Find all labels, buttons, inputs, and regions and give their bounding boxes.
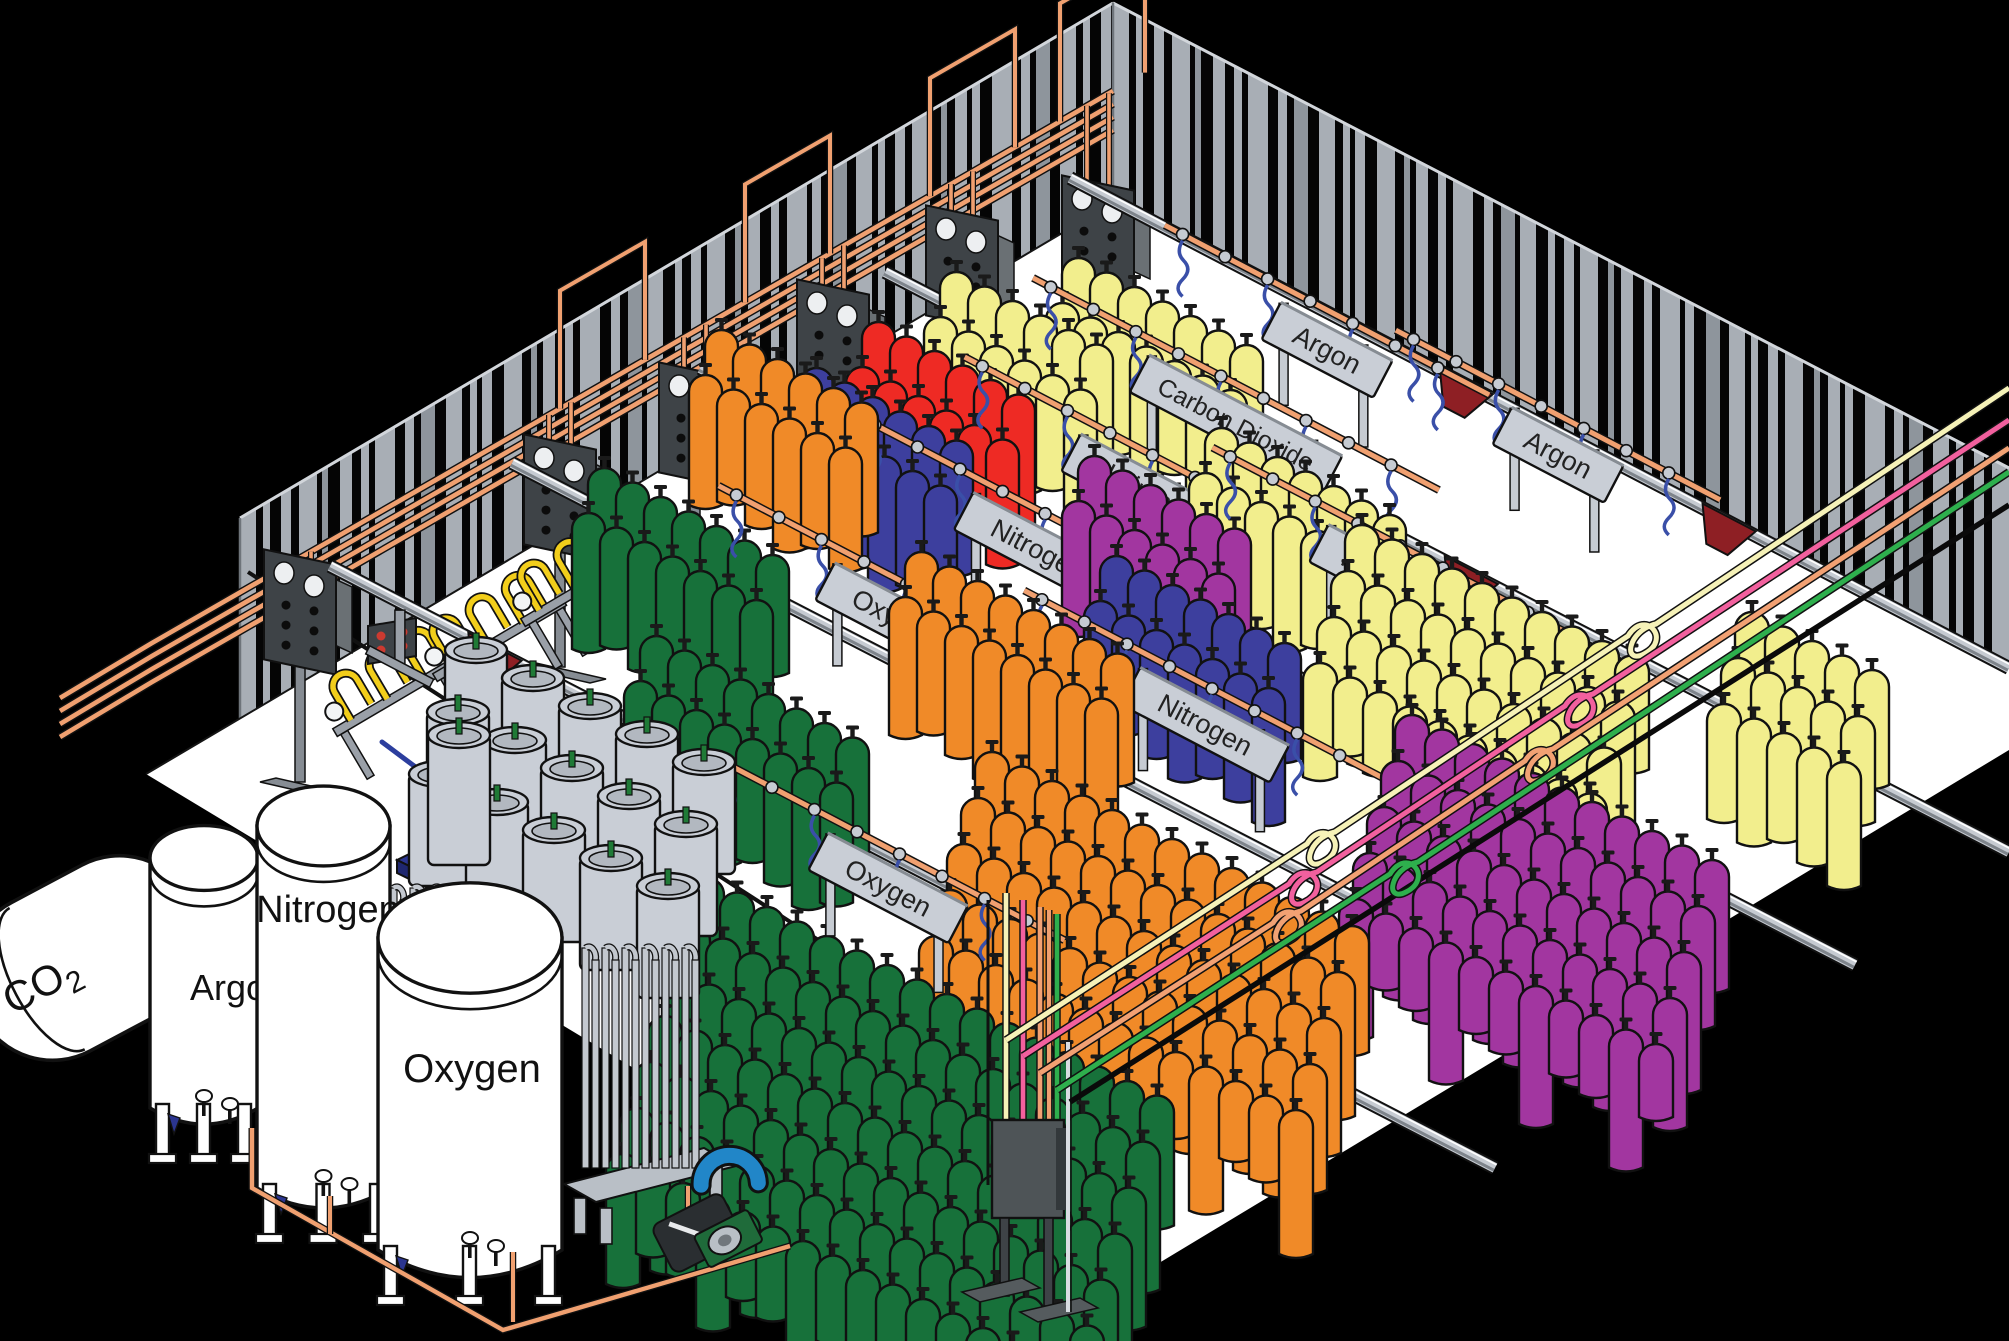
cylinder-valve (795, 1123, 808, 1127)
fill-point-regulator (1078, 616, 1090, 628)
cylinder-valve (1196, 842, 1209, 846)
cylinder-valve (1374, 680, 1387, 684)
cylinder-valve-stem (870, 388, 874, 398)
cylinder-valve-stem (1200, 845, 1204, 855)
cylinder-valve-stem (1128, 968, 1132, 978)
fill-point-regulator (1408, 333, 1420, 345)
cylinder-valve (1011, 643, 1024, 647)
cylinder-valve (906, 459, 919, 463)
cylinder-valve-stem (891, 1276, 895, 1286)
cylinder-valve-stem (1099, 690, 1103, 700)
cylinder-valve (783, 407, 796, 411)
vaporizer-tube (672, 960, 679, 1168)
cylinder-valve (1199, 461, 1212, 465)
cylinder-valve (1838, 750, 1851, 754)
cylinder-valve-stem (1450, 560, 1454, 570)
cylinder-valve (1648, 926, 1661, 930)
cylinder-valve (750, 588, 763, 592)
cylinder-valve (1410, 916, 1423, 920)
cylinder-valve-stem (1172, 937, 1176, 947)
cylinder-valve-stem (843, 1094, 847, 1104)
cylinder-valve (931, 1241, 944, 1245)
cylinder-valve-stem (1376, 577, 1380, 587)
cylinder-valve (705, 1079, 718, 1083)
cylinder-valve (1383, 503, 1396, 507)
cylinder-valve-stem (769, 1111, 773, 1121)
cylinder-valve-stem (1332, 608, 1336, 618)
cylinder-valve-stem (642, 533, 646, 543)
fill-point-regulator (1164, 660, 1176, 672)
cylinder-valve (990, 953, 1003, 957)
fill-point-regulator (1224, 451, 1236, 463)
cylinder-valve (1438, 824, 1451, 828)
fill-point-regulator (1172, 348, 1184, 360)
cylinder-valve-stem (1390, 531, 1394, 541)
cylinder-valve (774, 742, 787, 746)
cylinder-valve-stem (1392, 637, 1396, 647)
cylinder-valve-stem (1226, 605, 1230, 615)
vaporizer-tube (582, 948, 589, 1168)
cylinder-valve-stem (813, 1080, 817, 1090)
cylinder-valve (1076, 784, 1089, 788)
tank-leg (542, 1246, 555, 1298)
cylinder-valve-stem (770, 546, 774, 556)
cylinder-valve-stem (1387, 506, 1391, 516)
cylinder-valve-stem (1142, 922, 1146, 932)
cylinder-valve-stem (1870, 661, 1874, 671)
cylinder-valve-stem (1318, 654, 1322, 664)
cylinder-valve-stem (905, 1230, 909, 1240)
valve-handwheel (342, 1178, 358, 1190)
cylinder-valve-stem (834, 774, 838, 784)
cylinder-valve (1200, 1055, 1213, 1059)
cylinder-valve-stem (1254, 620, 1258, 630)
cylinder-valve (855, 391, 868, 395)
dewar-valve (608, 841, 614, 857)
cylinder-valve (913, 1074, 926, 1078)
tank-leg (156, 1104, 169, 1156)
cylinder-valve (1560, 989, 1573, 993)
cylinder-valve (1492, 632, 1505, 636)
cylinder-valve (1454, 885, 1467, 889)
cylinder-valve-stem (1098, 954, 1102, 964)
cylinder-valve (1748, 707, 1761, 711)
cylinder-valve-stem (1322, 1009, 1326, 1019)
cylinder-valve (841, 1198, 854, 1202)
cylinder-valve-stem (938, 477, 942, 487)
cylinder-valve-stem (975, 1000, 979, 1010)
cylinder-valve-stem (666, 687, 670, 697)
cylinder-valve-stem (933, 1138, 937, 1148)
cylinder-valve-stem (1336, 963, 1340, 973)
fill-point-regulator (1262, 273, 1274, 285)
fill-point-regulator (1291, 727, 1303, 739)
cylinder-valve-stem (1412, 813, 1416, 823)
cylinder-valve-stem (1204, 1058, 1208, 1068)
vaporizer-tube (632, 960, 639, 1168)
cylinder-valve (928, 339, 941, 343)
cylinder-valve (1122, 604, 1135, 608)
cylinder-valve-stem (1562, 885, 1566, 895)
cylinder-valve-stem (799, 1126, 803, 1136)
panel-port (677, 414, 686, 423)
cylinder-valve-stem (1096, 847, 1100, 857)
cylinder-valve-stem (1346, 562, 1350, 572)
cylinder-valve-stem (1534, 977, 1538, 987)
cylinder-valve (771, 347, 784, 351)
cylinder-valve (1090, 333, 1103, 337)
cylinder-valve-stem (1204, 505, 1208, 515)
cylinder-valve-stem (1154, 621, 1158, 631)
cylinder-valve-stem (794, 700, 798, 710)
dewar-valve (455, 695, 461, 711)
cylinder-valve-stem (977, 1106, 981, 1116)
cylinder-valve-stem (1348, 669, 1352, 679)
cylinder-valve (1095, 1268, 1108, 1272)
cylinder-valve (1448, 663, 1461, 667)
cylinder-valve-stem (1052, 879, 1056, 889)
cylinder-valve (986, 740, 999, 744)
fill-point-regulator (808, 804, 820, 816)
cylinder-valve-stem (1766, 664, 1770, 674)
cylinder-valve-stem (976, 789, 980, 799)
cylinder-valve-stem (1414, 919, 1418, 929)
fill-point-regulator (1334, 749, 1346, 761)
cylinder-valve (1079, 1207, 1092, 1211)
cylinder-valve-stem (871, 1002, 875, 1012)
cylinder-valve (1080, 997, 1093, 1001)
cylinder-valve-stem (1666, 883, 1670, 893)
cylinder-valve (1632, 865, 1645, 869)
cylinder-valve (999, 584, 1012, 588)
vaporizer-tube (622, 948, 629, 1168)
cylinder-valve (719, 1033, 732, 1037)
cylinder-valve-stem (981, 1319, 985, 1329)
cylinder-valve-stem (1238, 665, 1242, 675)
cylinder-valve-stem (1282, 634, 1286, 644)
cylinder-valve-stem (1652, 929, 1656, 939)
cylinder-valve (1244, 1023, 1257, 1027)
cylinder-valve (934, 305, 947, 309)
fill-point-regulator (851, 826, 863, 838)
cylinder-valve-stem (1015, 646, 1019, 656)
cylinder-valve (1271, 445, 1284, 449)
cylinder-valve (927, 600, 940, 604)
cylinder-valve-stem (703, 366, 707, 376)
cylinder-valve (1650, 1032, 1663, 1036)
tank-dome (150, 826, 258, 891)
cylinder-valve-stem (1140, 816, 1144, 826)
cylinder-valve (839, 436, 852, 440)
cylinder-valve (1299, 460, 1312, 464)
cylinder-valve-stem (738, 671, 742, 681)
cylinder-valve-stem (814, 359, 818, 369)
cylinder-valve (1476, 571, 1489, 575)
cylinder-valve (1151, 1084, 1164, 1088)
cylinder-valve-stem (1097, 1164, 1101, 1174)
fill-point-regulator (1343, 437, 1355, 449)
fill-point-regulator (1130, 326, 1142, 338)
fill-point-regulator (1019, 382, 1031, 394)
cylinder-valve-stem (850, 729, 854, 739)
cylinder-valve-stem (1420, 545, 1424, 555)
cylinder-valve-stem (1359, 492, 1363, 502)
cylinder-valve-stem (1155, 1087, 1159, 1097)
tank-foot (256, 1234, 283, 1243)
cylinder-valve (1792, 675, 1805, 679)
cylinder-valve-stem (1440, 721, 1444, 731)
cylinder-valve (960, 939, 973, 943)
cylinder-valve (1144, 473, 1157, 477)
cylinder-valve-stem (1842, 753, 1846, 763)
cylinder-valve (1278, 631, 1291, 635)
cylinder-valve-stem (1076, 492, 1080, 502)
cylinder-valve (911, 968, 924, 972)
fill-point-regulator (894, 848, 906, 860)
fill-point-regulator (1215, 370, 1227, 382)
cylinder-valve-stem (1050, 366, 1054, 376)
cylinder-valve-stem (1083, 1210, 1087, 1220)
cylinder-valve (1646, 819, 1659, 823)
cylinder-valve (1094, 951, 1107, 955)
cylinder-valve-stem (785, 1172, 789, 1182)
cylinder-valve-stem (1578, 946, 1582, 956)
dewar-valve (701, 745, 707, 761)
cylinder-valve-stem (1620, 808, 1624, 818)
fill-point-regulator (976, 360, 988, 372)
panel-port (677, 434, 686, 443)
cylinder-valve-stem (731, 381, 735, 391)
cylinder-valve-stem (1203, 464, 1207, 474)
cylinder-valve (810, 356, 823, 360)
cylinder-valve (1194, 588, 1207, 592)
dewar-valve (644, 717, 650, 733)
fill-point-regulator (1535, 400, 1547, 412)
cylinder-valve-stem (1532, 871, 1536, 881)
cylinder-valve-stem (1287, 508, 1291, 518)
cylinder-valve-stem (1230, 859, 1234, 869)
cylinder-valve-stem (921, 1290, 925, 1300)
cylinder-valve (1234, 662, 1247, 666)
cylinder-valve (1230, 1069, 1243, 1073)
cylinder-valve-stem (1384, 905, 1388, 915)
cylinder-valve-stem (1540, 603, 1544, 613)
cylinder-valve-stem (876, 313, 880, 323)
cylinder-valve (869, 1106, 882, 1110)
cylinder-valve (734, 668, 747, 672)
cylinder-valve (1822, 690, 1835, 694)
cylinder-valve-stem (658, 488, 662, 498)
cylinder-valve (1128, 518, 1141, 522)
cylinder-valve (1328, 605, 1341, 609)
valve-handwheel (316, 1170, 332, 1182)
cylinder-valve-stem (737, 990, 741, 1000)
vaporizer-tube (652, 960, 659, 1168)
panel-port (282, 601, 291, 610)
cylinder-valve-stem (1608, 960, 1612, 970)
cylinder-valve-stem (783, 1065, 787, 1075)
cylinder-valve (699, 363, 712, 367)
cylinder-valve-stem (1182, 636, 1186, 646)
fill-point-regulator (1087, 303, 1099, 315)
cylinder-valve-stem (992, 850, 996, 860)
cylinder-valve-stem (1141, 1133, 1145, 1143)
cylinder-valve-stem (1696, 897, 1700, 907)
cylinder-valve (857, 1258, 870, 1262)
cylinder-valve-stem (1218, 1012, 1222, 1022)
cylinder-valve-stem (739, 1097, 743, 1107)
fill-point-regulator (911, 441, 923, 453)
cylinder-valve-stem (1039, 1242, 1043, 1252)
cylinder-valve-stem (1246, 920, 1250, 930)
cylinder-valve (1250, 617, 1263, 621)
cylinder-valve-stem (1452, 666, 1456, 676)
cylinder-valve (1478, 678, 1491, 682)
dewar-valve (665, 869, 671, 885)
cylinder-valve-stem (1294, 1101, 1298, 1111)
cylinder-valve (943, 555, 956, 559)
cylinder-valve-stem (841, 988, 845, 998)
cylinder-valve (943, 1089, 956, 1093)
cylinder-valve-stem (931, 1031, 935, 1041)
tank-foot (377, 1296, 404, 1305)
fill-point-regulator (858, 556, 870, 568)
cylinder-valve-stem (795, 913, 799, 923)
cylinder-valve (1243, 431, 1256, 435)
cylinder-valve-stem (1078, 381, 1082, 391)
cylinder-valve (883, 1060, 896, 1064)
pressure-gauge (534, 447, 554, 469)
pressure-gauge (564, 460, 584, 482)
fill-point-regulator (766, 781, 778, 793)
cylinder-valve-stem (682, 642, 686, 652)
cylinder-valve-stem (775, 350, 779, 360)
cylinder-valve (1081, 1314, 1094, 1318)
cylinder-valve (975, 1210, 988, 1214)
cylinder-valve-stem (1202, 951, 1206, 961)
dewar-valve (626, 779, 632, 795)
cylinder-valve (1088, 444, 1101, 448)
cylinder-valve (1332, 960, 1345, 964)
cylinder-valve-stem (1502, 856, 1506, 866)
fill-point-regulator (1663, 467, 1675, 479)
cylinder-valve-stem (1458, 888, 1462, 898)
cylinder-valve-stem (1488, 902, 1492, 912)
cylinder-valve-stem (859, 1155, 863, 1165)
cylinder-valve (715, 318, 728, 322)
cylinder-valve-stem (1084, 1000, 1088, 1010)
cylinder-valve (1093, 1161, 1106, 1165)
cylinder-valve (1262, 676, 1275, 680)
cylinder-valve-stem (965, 1259, 969, 1269)
cylinder-valve (1618, 911, 1631, 915)
cylinder-valve (1109, 1222, 1122, 1226)
cylinder-valve (1500, 960, 1513, 964)
pressure-gauge (936, 218, 956, 240)
cylinder-valve-stem (638, 672, 642, 682)
cylinder-valve (983, 629, 996, 633)
cylinder-valve-stem (1264, 1087, 1268, 1097)
cylinder-valve-stem (1127, 1179, 1131, 1189)
cylinder-valve-stem (831, 379, 835, 389)
cylinder-valve-stem (1496, 635, 1500, 645)
cylinder-valve-stem (1082, 893, 1086, 903)
cylinder-valve-stem (1474, 948, 1478, 958)
cylinder-valve-stem (926, 417, 930, 427)
panel-port (972, 262, 981, 271)
fill-point-regulator (815, 534, 827, 546)
cylinder-valve (1318, 1006, 1331, 1010)
cylinder-valve (1506, 586, 1519, 590)
cylinder-valve (1542, 822, 1555, 826)
cylinder-valve-stem (959, 617, 963, 627)
cylinder-valve (718, 713, 731, 717)
cylinder-valve-stem (747, 336, 751, 346)
cylinder-valve-stem (917, 1077, 921, 1087)
cylinder-valve-stem (811, 973, 815, 983)
cylinder-valve-stem (750, 730, 754, 740)
cylinder-valve (807, 970, 820, 974)
fill-point-regulator (1385, 459, 1397, 471)
cylinder-valve-stem (972, 416, 976, 426)
cylinder-valve-stem (1275, 448, 1279, 458)
cylinder-valve (1620, 1018, 1633, 1022)
vaporizer-tube (662, 948, 669, 1168)
cylinder-valve-stem (898, 403, 902, 413)
cylinder-valve (735, 1094, 748, 1098)
cylinder-valve-stem (1006, 804, 1010, 814)
vaporizer-tube (612, 960, 619, 1168)
cylinder-valve (1156, 290, 1169, 294)
cylinder-valve-stem (991, 1060, 995, 1070)
cylinder-valve (971, 569, 984, 573)
cylinder-valve-stem (949, 1198, 953, 1208)
cylinder-valve-stem (1198, 591, 1202, 601)
cylinder-valve (1240, 333, 1253, 337)
cylinder-valve (929, 1135, 942, 1139)
cylinder-valve-stem (1320, 903, 1324, 913)
cylinder-valve (749, 1048, 762, 1052)
cylinder-valve-stem (1248, 1026, 1252, 1036)
cylinder-valve-stem (916, 387, 920, 397)
cylinder-valve (703, 973, 716, 977)
cylinder-valve-stem (882, 448, 886, 458)
panel-side-tab (336, 580, 352, 653)
cylinder-valve (1067, 672, 1080, 676)
cylinder-valve-stem (954, 432, 958, 442)
cylinder-valve (972, 786, 985, 790)
cylinder-valve (872, 310, 885, 314)
cylinder-valve (955, 614, 968, 618)
fill-point-regulator (1045, 281, 1057, 293)
cylinder-valve-stem (1292, 995, 1296, 1005)
cylinder-valve-stem (1160, 536, 1164, 546)
cylinder-valve (1046, 769, 1059, 773)
cylinder-valve (1172, 488, 1185, 492)
cylinder-valve (837, 985, 850, 989)
cylinder-valve (881, 953, 894, 957)
cylinder-valve (947, 1302, 960, 1306)
cylinder-valve-stem (1092, 447, 1096, 457)
cylinder-valve (1110, 1011, 1123, 1015)
cylinder-valve-stem (1003, 587, 1007, 597)
cylinder-valve (737, 1200, 750, 1204)
cylinder-valve (777, 956, 790, 960)
cylinder-valve-stem (885, 956, 889, 966)
cylinder-valve-stem (857, 1048, 861, 1058)
cylinder-valve (915, 1181, 928, 1185)
cylinder-valve (959, 1149, 972, 1153)
